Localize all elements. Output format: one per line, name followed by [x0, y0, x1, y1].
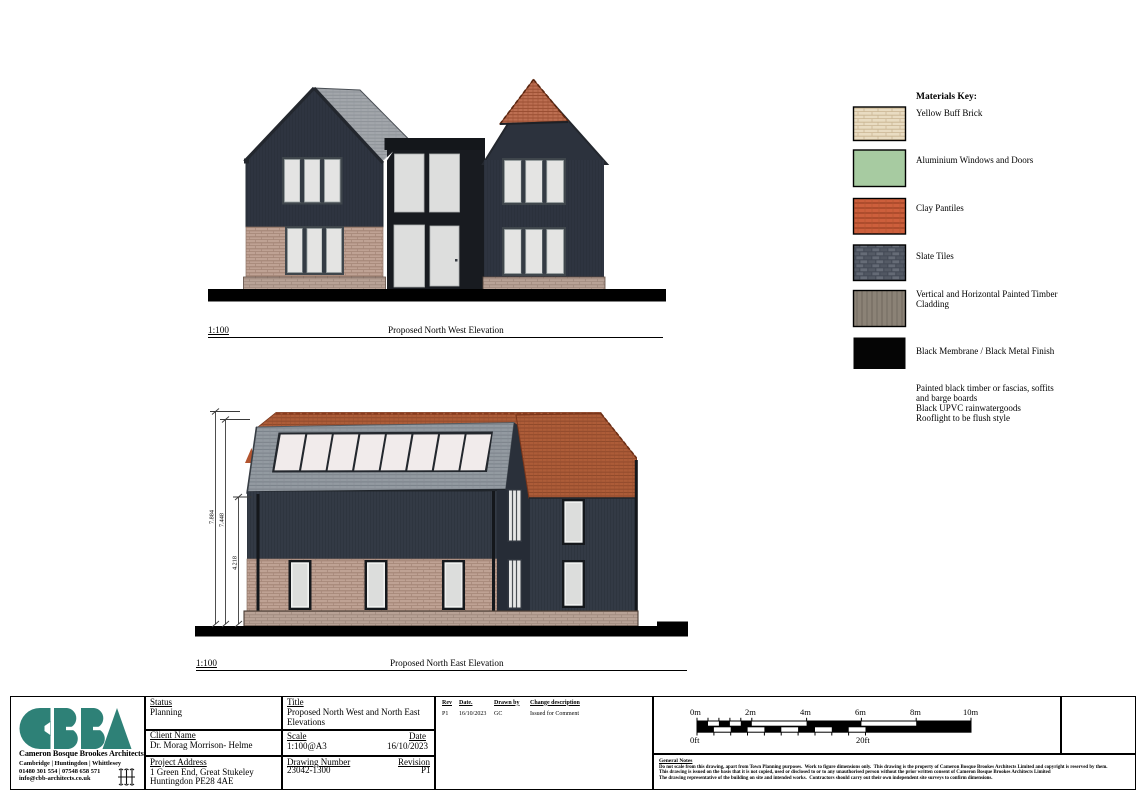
svg-text:7.448: 7.448 — [219, 513, 226, 527]
svg-text:4.218: 4.218 — [232, 556, 239, 570]
svg-text:7.884: 7.884 — [209, 510, 216, 524]
